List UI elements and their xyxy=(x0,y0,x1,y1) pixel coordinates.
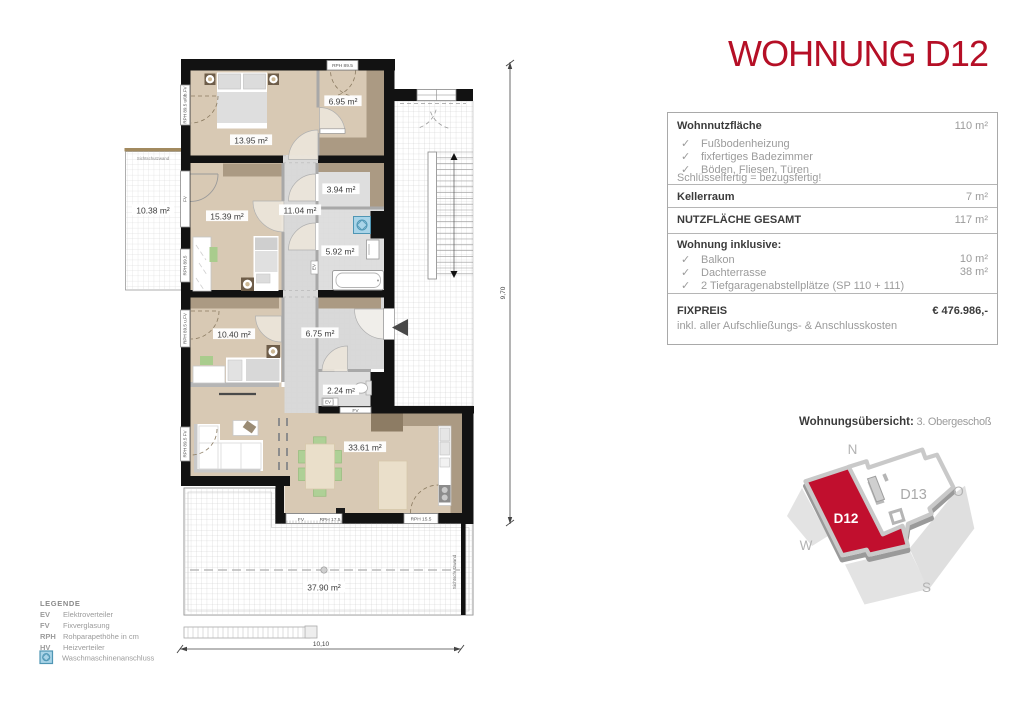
svg-text:15.39 m²: 15.39 m² xyxy=(210,211,244,221)
svg-text:FV: FV xyxy=(352,408,359,414)
svg-text:RPH 89.5 FV: RPH 89.5 FV xyxy=(182,430,187,458)
svg-text:D12: D12 xyxy=(834,511,859,526)
svg-text:O: O xyxy=(953,484,964,499)
svg-text:3.94 m²: 3.94 m² xyxy=(327,184,356,194)
svg-text:N: N xyxy=(848,442,858,457)
svg-text:10.40 m²: 10.40 m² xyxy=(217,329,251,339)
svg-text:10.38 m²: 10.38 m² xyxy=(136,205,170,215)
svg-text:FV: FV xyxy=(182,195,187,202)
svg-text:D13: D13 xyxy=(900,487,927,503)
svg-text:33.61 m²: 33.61 m² xyxy=(348,442,382,452)
svg-text:EV: EV xyxy=(312,263,317,270)
svg-text:RPH 89.5 u.FV: RPH 89.5 u.FV xyxy=(182,312,187,344)
svg-text:W: W xyxy=(800,538,813,553)
svg-text:RPH 89.5 u/üb.FV: RPH 89.5 u/üb.FV xyxy=(182,85,187,123)
svg-text:37.90 m²: 37.90 m² xyxy=(307,582,341,592)
svg-text:2.24 m²: 2.24 m² xyxy=(327,386,355,395)
svg-text:RPH 89.5: RPH 89.5 xyxy=(332,63,353,69)
svg-text:11.04 m²: 11.04 m² xyxy=(284,205,317,215)
svg-text:EV: EV xyxy=(325,400,331,405)
svg-text:Sichtschutzwand: Sichtschutzwand xyxy=(452,554,457,589)
svg-text:5.92 m²: 5.92 m² xyxy=(326,246,355,256)
svg-text:6.75 m²: 6.75 m² xyxy=(306,328,335,338)
svg-text:13.95 m²: 13.95 m² xyxy=(234,135,268,145)
svg-text:RPH 15.5: RPH 15.5 xyxy=(411,516,432,522)
svg-text:RPH 89.5: RPH 89.5 xyxy=(182,255,187,275)
svg-text:10,10: 10,10 xyxy=(313,641,330,648)
svg-text:6.95 m²: 6.95 m² xyxy=(329,96,358,106)
svg-text:9,70: 9,70 xyxy=(500,286,507,299)
svg-text:S: S xyxy=(922,580,931,595)
svg-text:Sichtschutzwand: Sichtschutzwand xyxy=(137,156,170,161)
